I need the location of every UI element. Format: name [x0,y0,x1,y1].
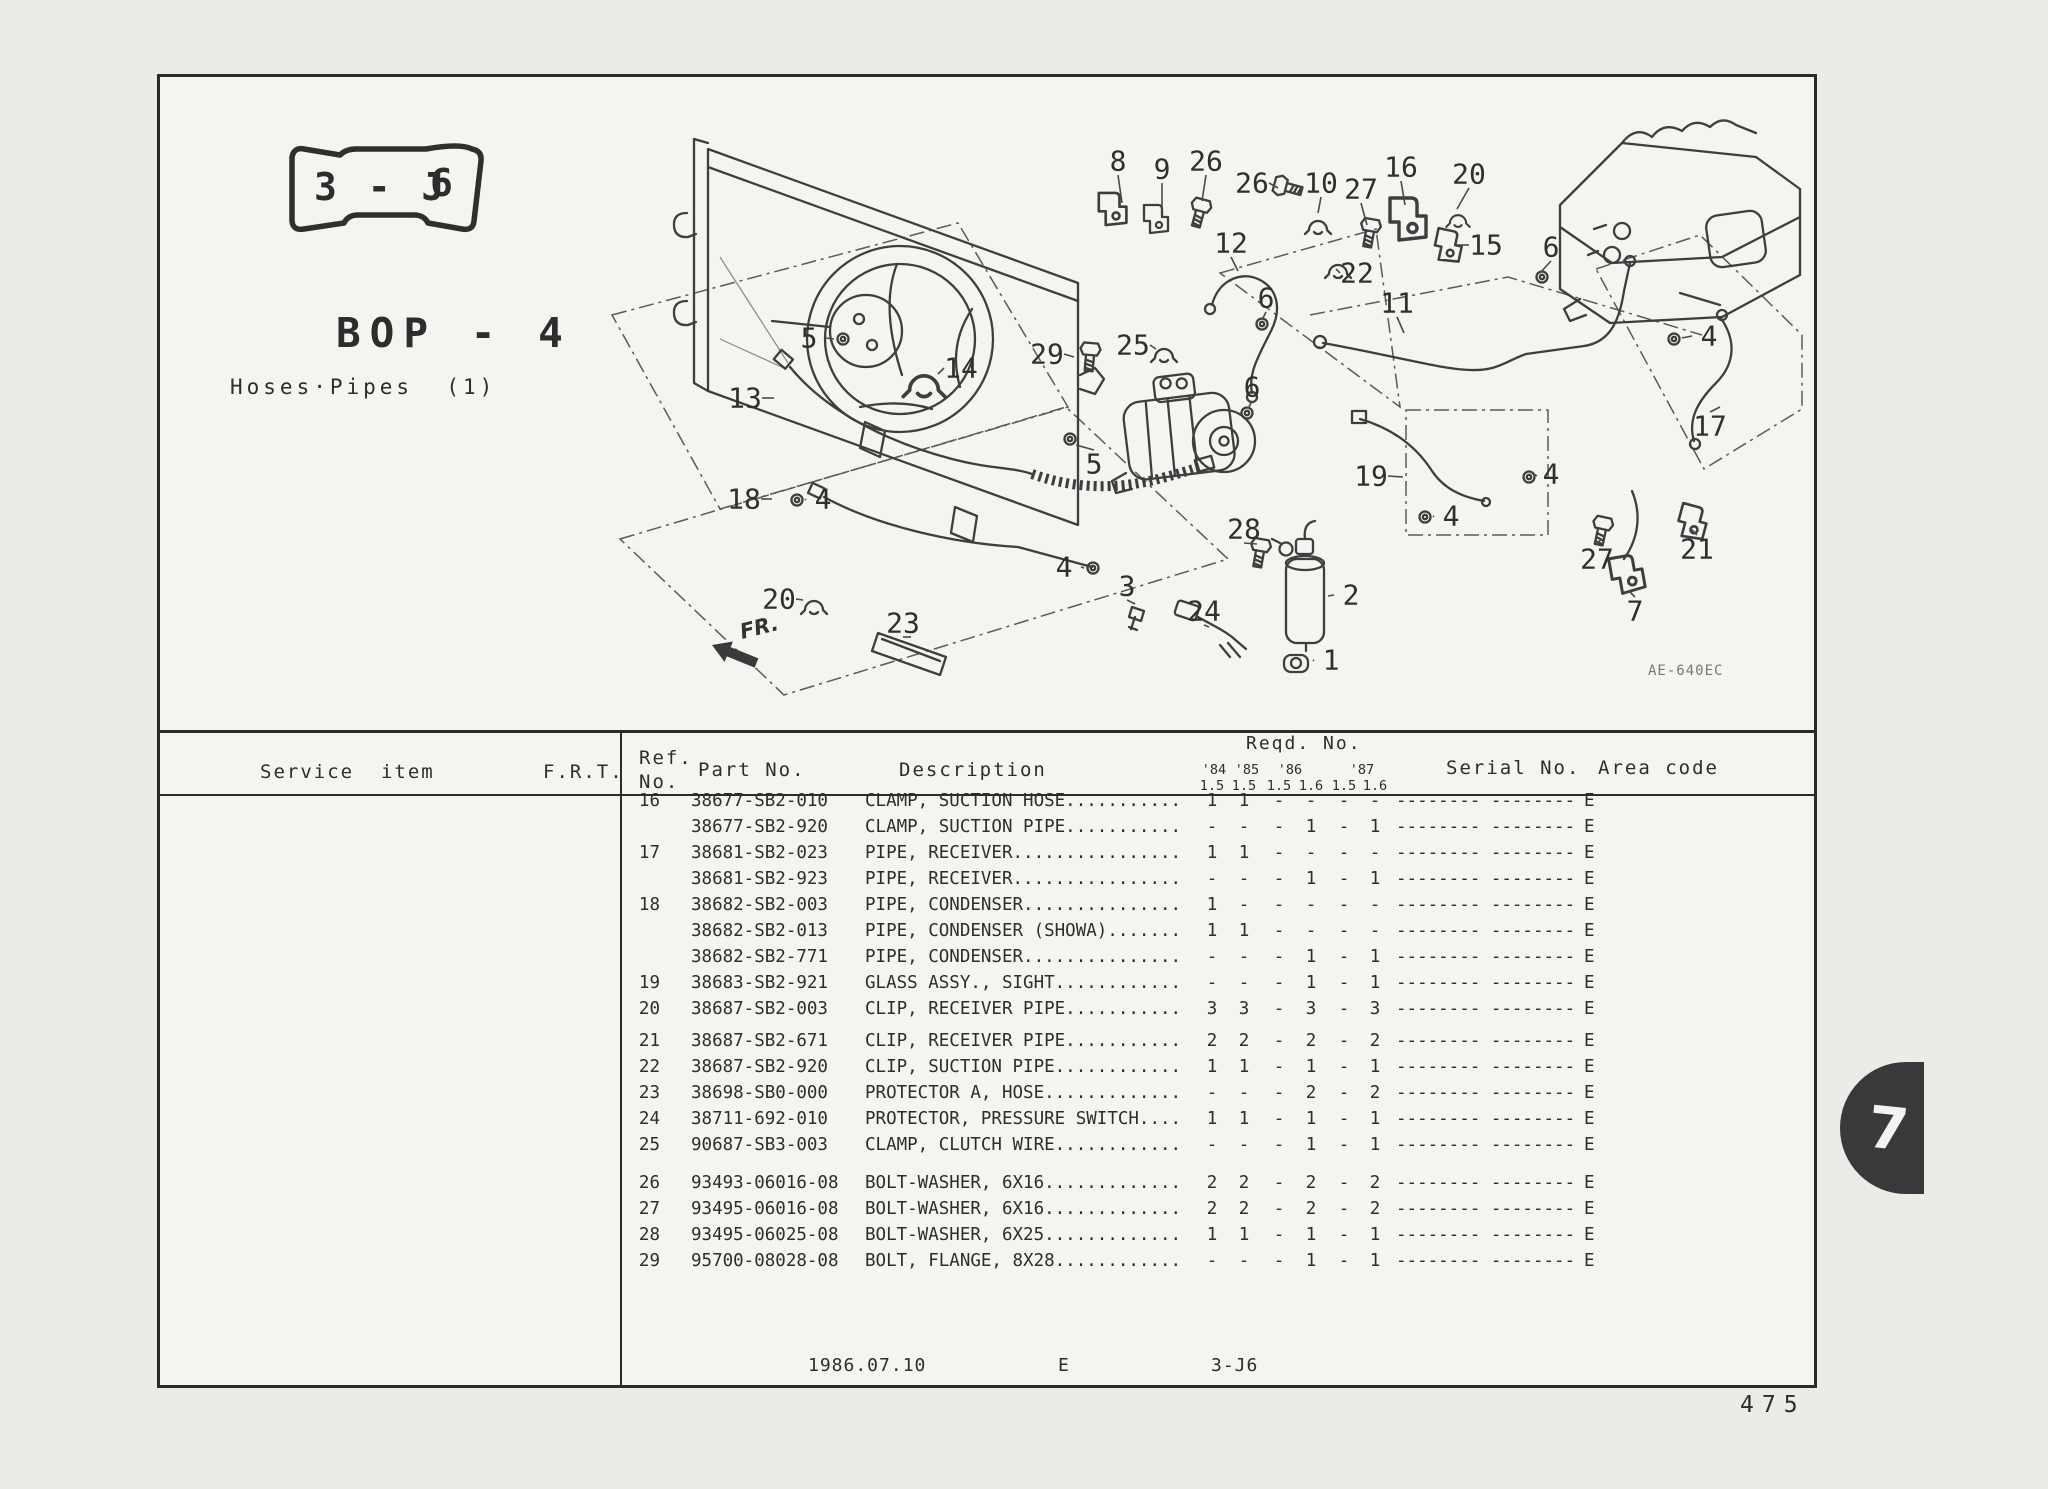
area-code: E [1584,921,1595,941]
callout-4: 4 [1056,551,1073,584]
qty-1: 1 [1231,791,1257,811]
callout-leader [826,338,834,339]
qty-5: 1 [1362,1225,1388,1245]
part-no: 38677-SB2-010 [691,791,828,811]
qty-1: 3 [1231,999,1257,1019]
qty-0: - [1199,973,1225,993]
qty-4: - [1331,1225,1357,1245]
callout-15: 15 [1469,229,1503,262]
qty-4: - [1331,1083,1357,1103]
qty-1: - [1231,973,1257,993]
callout-leader [1150,345,1156,349]
qty-3: - [1298,895,1324,915]
description: BOLT-WASHER, 6X16............. [865,1199,1181,1219]
part-no: 38683-SB2-921 [691,973,828,993]
catalog-page: 3 - J 6 BOP - 4 Hoses·Pipes (1) [0,0,2048,1489]
qty-3: - [1298,791,1324,811]
description: CLIP, RECEIVER PIPE........... [865,1031,1181,1051]
area-code: E [1584,791,1595,811]
callout-4: 4 [815,483,832,516]
callout-4: 4 [1701,320,1718,353]
callout-12: 12 [1214,227,1248,260]
qty-2: - [1266,1135,1292,1155]
qty-1: - [1231,947,1257,967]
qty-0: 1 [1199,921,1225,941]
ref-no: 25 [630,1135,660,1155]
area-code: E [1584,817,1595,837]
callout-7: 7 [1627,595,1644,628]
ref-no: 21 [630,1031,660,1051]
callout-13: 13 [728,382,762,415]
part-no: 93493-06016-08 [691,1173,839,1193]
qty-5: 1 [1362,1135,1388,1155]
qty-0: 3 [1199,999,1225,1019]
area-code: E [1584,1135,1595,1155]
ref-no: 19 [630,973,660,993]
callout-27: 27 [1580,543,1614,576]
qty-0: 2 [1199,1173,1225,1193]
callout-6: 6 [1543,231,1560,264]
area-code: E [1584,999,1595,1019]
serial-no: -------- -------- [1396,869,1575,889]
qty-4: - [1331,817,1357,837]
qty-3: - [1298,843,1324,863]
callout-2: 2 [1343,579,1360,612]
qty-1: 2 [1231,1031,1257,1051]
qty-5: 1 [1362,869,1388,889]
part-row-25: 2590687-SB3-003CLAMP, CLUTCH WIRE.......… [160,1135,1814,1160]
serial-no: -------- -------- [1396,947,1575,967]
qty-5: 2 [1362,1199,1388,1219]
qty-1: 1 [1231,1057,1257,1077]
description: BOLT-WASHER, 6X16............. [865,1173,1181,1193]
callout-leader [796,599,803,600]
qty-3: 1 [1298,947,1324,967]
callout-24: 24 [1187,595,1221,628]
description: PROTECTOR A, HOSE............. [865,1083,1181,1103]
qty-2: - [1266,1109,1292,1129]
callout-20: 20 [762,583,796,616]
col-header-ref: Ref. [639,747,693,769]
part-no: 93495-06025-08 [691,1225,839,1245]
description: PROTECTOR, PRESSURE SWITCH.... [865,1109,1181,1129]
part-no: 38681-SB2-023 [691,843,828,863]
qty-3: 1 [1298,973,1324,993]
callout-16: 16 [1384,151,1418,184]
parts-table: Service item F.R.T. Ref. No. Part No. De… [160,730,1814,1385]
description: PIPE, CONDENSER............... [865,895,1181,915]
qty-1: - [1231,1251,1257,1271]
serial-no: -------- -------- [1396,791,1575,811]
part-row-38682-SB2-771: 38682-SB2-771PIPE, CONDENSER............… [160,947,1814,972]
col-header-area-code: Area code [1598,757,1719,779]
callout-22: 22 [1340,257,1374,290]
qty-1: 1 [1231,921,1257,941]
qty-1: 1 [1231,843,1257,863]
qty-5: 2 [1362,1083,1388,1103]
qty-5: 3 [1362,999,1388,1019]
serial-no: -------- -------- [1396,1109,1575,1129]
qty-5: 1 [1362,817,1388,837]
part-row-21: 2138687-SB2-671CLIP, RECEIVER PIPE......… [160,1031,1814,1056]
part-no: 38698-SB0-000 [691,1083,828,1103]
callout-leader [1682,336,1692,338]
qty-4: - [1331,895,1357,915]
part-no: 38677-SB2-920 [691,817,828,837]
parts-diagram: FR. AE-640EC 892626102716201512226112925… [160,77,1814,730]
ref-no: 16 [630,791,660,811]
part-no: 38687-SB2-920 [691,1057,828,1077]
ref-no: 20 [630,999,660,1019]
page-frame: 3 - J 6 BOP - 4 Hoses·Pipes (1) [157,74,1817,1388]
qty-5: 1 [1362,1251,1388,1271]
footer-date: 1986.07.10 [808,1355,926,1376]
qty-1: - [1231,869,1257,889]
qty-2: - [1266,895,1292,915]
col-header-part-no: Part No. [698,759,806,781]
col-header-serial-no: Serial No. [1446,757,1580,779]
qty-1: - [1231,817,1257,837]
ref-no: 27 [630,1199,660,1219]
qty-0: - [1199,947,1225,967]
qty-0: 1 [1199,1057,1225,1077]
callout-leader [1401,181,1405,205]
callout-leader [938,368,944,374]
qty-0: 1 [1199,843,1225,863]
qty-2: - [1266,1199,1292,1219]
ref-no: 24 [630,1109,660,1129]
description: CLIP, SUCTION PIPE............ [865,1057,1181,1077]
serial-no: -------- -------- [1396,1031,1575,1051]
serial-no: -------- -------- [1396,843,1575,863]
qty-2: - [1266,1031,1292,1051]
callout-20: 20 [1452,158,1486,191]
qty-3: 1 [1298,1225,1324,1245]
qty-2: - [1266,1173,1292,1193]
description: GLASS ASSY., SIGHT............ [865,973,1181,993]
qty-4: - [1331,1057,1357,1077]
year-header: '85 [1235,762,1259,778]
page-number: 475 [1740,1392,1806,1418]
area-code: E [1584,843,1595,863]
qty-1: 2 [1231,1173,1257,1193]
qty-4: - [1331,973,1357,993]
qty-2: - [1266,947,1292,967]
qty-4: - [1331,1173,1357,1193]
callout-14: 14 [944,352,978,385]
area-code: E [1584,1225,1595,1245]
dashdot-region-hose13 [612,223,1068,509]
qty-5: 2 [1362,1173,1388,1193]
area-code: E [1584,1057,1595,1077]
ref-no: 17 [630,843,660,863]
qty-3: 3 [1298,999,1324,1019]
qty-4: - [1331,843,1357,863]
qty-2: - [1266,1083,1292,1103]
qty-4: - [1331,1135,1357,1155]
receiver-drier-assembly [1272,521,1324,672]
part-no: 93495-06016-08 [691,1199,839,1219]
qty-0: - [1199,869,1225,889]
section-index-tab-label: 7 [1852,1091,1911,1164]
serial-no: -------- -------- [1396,895,1575,915]
qty-4: - [1331,1199,1357,1219]
qty-3: - [1298,921,1324,941]
serial-no: -------- -------- [1396,1135,1575,1155]
qty-3: 2 [1298,1199,1324,1219]
part-row-23: 2338698-SB0-000PROTECTOR A, HOSE........… [160,1083,1814,1108]
part-row-38682-SB2-013: 38682-SB2-013PIPE, CONDENSER (SHOWA)....… [160,921,1814,946]
qty-2: - [1266,1225,1292,1245]
description: PIPE, CONDENSER............... [865,947,1181,967]
area-code: E [1584,1109,1595,1129]
serial-no: -------- -------- [1396,999,1575,1019]
part-no: 95700-08028-08 [691,1251,839,1271]
callout-leader [1081,567,1084,568]
part-row-38677-SB2-920: 38677-SB2-920CLAMP, SUCTION PIPE........… [160,817,1814,842]
callout-8: 8 [1110,145,1127,178]
callout-4: 4 [1543,458,1560,491]
qty-0: 1 [1199,791,1225,811]
col-header-frt: F.R.T. [543,761,624,783]
area-code: E [1584,1083,1595,1103]
ref-no: 26 [630,1173,660,1193]
qty-1: 2 [1231,1199,1257,1219]
area-code: E [1584,947,1595,967]
callout-27: 27 [1344,173,1378,206]
qty-2: - [1266,1251,1292,1271]
serial-no: -------- -------- [1396,1083,1575,1103]
ref-no: 29 [630,1251,660,1271]
callout-leader [1202,175,1206,201]
fr-direction-label: FR. [737,611,781,644]
serial-no: -------- -------- [1396,921,1575,941]
qty-2: - [1266,843,1292,863]
area-code: E [1584,1199,1595,1219]
section-index-tab: 7 [1840,1062,1924,1194]
qty-4: - [1331,791,1357,811]
footer-area-code: E [1058,1355,1070,1376]
qty-1: - [1231,1135,1257,1155]
part-row-18: 1838682-SB2-003PIPE, CONDENSER..........… [160,895,1814,920]
callout-28: 28 [1227,513,1261,546]
description: CLAMP, SUCTION PIPE........... [865,817,1181,837]
part-row-38681-SB2-923: 38681-SB2-923PIPE, RECEIVER.............… [160,869,1814,894]
callout-5: 5 [801,322,818,355]
qty-3: 2 [1298,1083,1324,1103]
callout-leader [1433,516,1434,517]
qty-4: - [1331,947,1357,967]
serial-no: -------- -------- [1396,1251,1575,1271]
qty-1: - [1231,895,1257,915]
serial-no: -------- -------- [1396,1173,1575,1193]
qty-4: - [1331,1031,1357,1051]
year-header: '86 [1278,762,1302,778]
callout-leader [1388,476,1403,477]
qty-2: - [1266,973,1292,993]
qty-3: 2 [1298,1031,1324,1051]
part-row-19: 1938683-SB2-921GLASS ASSY., SIGHT.......… [160,973,1814,998]
callout-1: 1 [1323,644,1340,677]
qty-4: - [1331,921,1357,941]
part-row-28: 2893495-06025-08BOLT-WASHER, 6X25.......… [160,1225,1814,1250]
part-no: 38682-SB2-013 [691,921,828,941]
qty-2: - [1266,791,1292,811]
col-header-ref-no: No. [639,771,679,793]
qty-2: - [1266,1057,1292,1077]
part-no: 38711-692-010 [691,1109,828,1129]
year-header: '87 [1350,762,1374,778]
ref-no: 18 [630,895,660,915]
serial-no: -------- -------- [1396,973,1575,993]
callout-11: 11 [1380,287,1414,320]
part-row-16: 1638677-SB2-010CLAMP, SUCTION HOSE......… [160,791,1814,816]
qty-1: - [1231,1083,1257,1103]
qty-0: - [1199,1251,1225,1271]
part-row-24: 2438711-692-010PROTECTOR, PRESSURE SWITC… [160,1109,1814,1134]
qty-4: - [1331,1109,1357,1129]
callout-6: 6 [1258,282,1275,315]
callout-leader [1313,660,1314,661]
qty-2: - [1266,921,1292,941]
part-no: 90687-SB3-003 [691,1135,828,1155]
callout-25: 25 [1116,329,1150,362]
qty-3: 1 [1298,1057,1324,1077]
description: CLAMP, SUCTION HOSE........... [865,791,1181,811]
area-code: E [1584,1251,1595,1271]
qty-0: 2 [1199,1199,1225,1219]
area-code: E [1584,1031,1595,1051]
qty-0: - [1199,1083,1225,1103]
qty-0: - [1199,817,1225,837]
qty-3: 1 [1298,1251,1324,1271]
part-no: 38687-SB2-671 [691,1031,828,1051]
callout-leader [1328,595,1334,596]
qty-0: 2 [1199,1031,1225,1051]
callout-26: 26 [1189,145,1223,178]
ref-no: 23 [630,1083,660,1103]
description: PIPE, CONDENSER (SHOWA)....... [865,921,1181,941]
qty-5: 1 [1362,973,1388,993]
part-no: 38682-SB2-003 [691,895,828,915]
part-no: 38681-SB2-923 [691,869,828,889]
area-code: E [1584,895,1595,915]
qty-3: 1 [1298,1135,1324,1155]
part-row-27: 2793495-06016-08BOLT-WASHER, 6X16.......… [160,1199,1814,1224]
part-row-22: 2238687-SB2-920CLIP, SUCTION PIPE.......… [160,1057,1814,1082]
qty-3: 2 [1298,1173,1324,1193]
ref-no: 28 [630,1225,660,1245]
qty-5: - [1362,843,1388,863]
area-code: E [1584,973,1595,993]
description: CLIP, RECEIVER PIPE........... [865,999,1181,1019]
qty-5: - [1362,895,1388,915]
description: BOLT, FLANGE, 8X28............ [865,1251,1181,1271]
qty-5: 1 [1362,947,1388,967]
callout-10: 10 [1304,167,1338,200]
callout-4: 4 [1443,500,1460,533]
callout-leader [805,499,806,500]
part-no: 38687-SB2-003 [691,999,828,1019]
footer-section-code: 3-J6 [1211,1355,1258,1376]
callout-leader [1457,188,1469,209]
callout-19: 19 [1354,460,1388,493]
diagram-code: AE-640EC [1648,663,1723,679]
callout-leader [1064,354,1074,357]
qty-5: - [1362,921,1388,941]
part-row-29: 2995700-08028-08BOLT, FLANGE, 8X28......… [160,1251,1814,1276]
part-row-17: 1738681-SB2-023PIPE, RECEIVER...........… [160,843,1814,868]
qty-5: 1 [1362,1109,1388,1129]
serial-no: -------- -------- [1396,1199,1575,1219]
qty-5: 1 [1362,1057,1388,1077]
qty-4: - [1331,869,1357,889]
compressor-assembly [1112,369,1255,493]
qty-0: 1 [1199,1109,1225,1129]
serial-no: -------- -------- [1396,1057,1575,1077]
qty-2: - [1266,869,1292,889]
col-header-reqd-no: Reqd. No. [1246,733,1362,754]
qty-3: 1 [1298,817,1324,837]
col-header-service-item: Service item [260,761,435,783]
qty-3: 1 [1298,869,1324,889]
callout-6: 6 [1244,371,1261,404]
callout-23: 23 [886,607,920,640]
qty-0: 1 [1199,895,1225,915]
callout-29: 29 [1030,338,1064,371]
callout-17: 17 [1693,410,1727,443]
callout-9: 9 [1154,153,1171,186]
area-code: E [1584,869,1595,889]
serial-no: -------- -------- [1396,1225,1575,1245]
qty-0: - [1199,1135,1225,1155]
part-row-20: 2038687-SB2-003CLIP, RECEIVER PIPE......… [160,999,1814,1024]
callout-18: 18 [727,483,761,516]
callout-21: 21 [1680,533,1714,566]
qty-4: - [1331,999,1357,1019]
qty-5: 2 [1362,1031,1388,1051]
part-no: 38682-SB2-771 [691,947,828,967]
qty-4: - [1331,1251,1357,1271]
qty-0: 1 [1199,1225,1225,1245]
part-row-26: 2693493-06016-08BOLT-WASHER, 6X16.......… [160,1173,1814,1198]
year-header: '84 [1202,762,1226,778]
qty-1: 1 [1231,1109,1257,1129]
description: CLAMP, CLUTCH WIRE............ [865,1135,1181,1155]
qty-1: 1 [1231,1225,1257,1245]
description: BOLT-WASHER, 6X25............. [865,1225,1181,1245]
qty-2: - [1266,817,1292,837]
callout-5: 5 [1086,448,1103,481]
qty-5: - [1362,791,1388,811]
qty-3: 1 [1298,1109,1324,1129]
callout-26: 26 [1235,167,1269,200]
col-header-description: Description [899,759,1047,781]
callout-3: 3 [1119,570,1136,603]
description: PIPE, RECEIVER................ [865,843,1181,863]
ref-no: 22 [630,1057,660,1077]
serial-no: -------- -------- [1396,817,1575,837]
description: PIPE, RECEIVER................ [865,869,1181,889]
qty-2: - [1266,999,1292,1019]
area-code: E [1584,1173,1595,1193]
